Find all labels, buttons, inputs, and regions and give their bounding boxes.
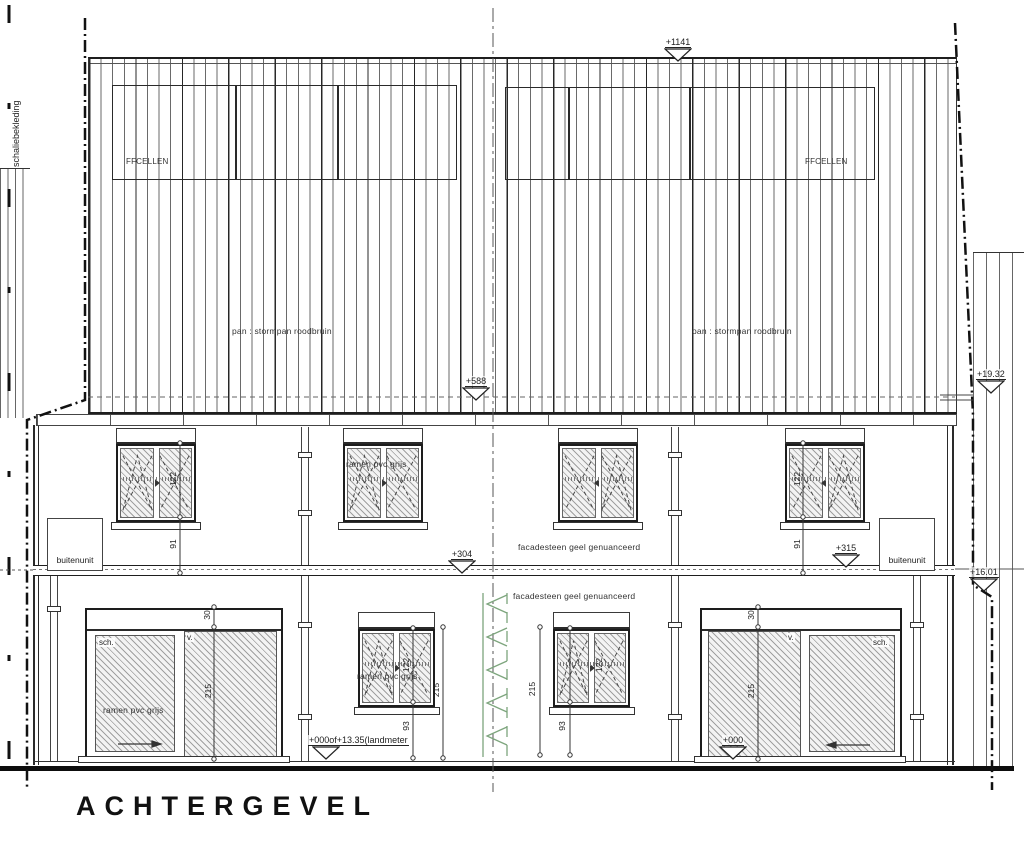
window-sill bbox=[553, 522, 643, 530]
window-lower-1 bbox=[358, 612, 435, 715]
dim-sill-height: 93 bbox=[557, 711, 567, 741]
outdoor-unit-right: buitenunit bbox=[879, 518, 935, 571]
dim-roller-height: 30 bbox=[202, 600, 212, 630]
pv-panel-field-right bbox=[505, 87, 875, 180]
window-upper-2 bbox=[343, 428, 423, 530]
opening-symbol bbox=[362, 633, 431, 703]
elevation-drawing-sheet: FFCELLEN FFCELLEN pan : stormpan roodbru… bbox=[0, 0, 1024, 853]
elevation-marker-floor-right: +315 bbox=[832, 543, 860, 568]
sliding-door-left: sch. v. bbox=[85, 608, 283, 762]
vent-grille bbox=[120, 477, 192, 481]
roller-shutter-box bbox=[553, 612, 630, 629]
vent-grille bbox=[557, 662, 626, 666]
opening-symbol bbox=[562, 448, 634, 518]
pv-divider bbox=[568, 88, 570, 179]
elevation-marker-neighbor-low: +16.01 bbox=[969, 567, 999, 592]
roof-tile-label-right: pan : stormpan roodbruin bbox=[692, 326, 792, 336]
facade-brick-label-lower: facadesteen geel genuanceerd bbox=[513, 591, 635, 601]
dim-sill-height: 91 bbox=[168, 529, 178, 559]
pipe-collar bbox=[910, 622, 924, 628]
downpipe bbox=[301, 574, 309, 762]
pv-label-left: FFCELLEN bbox=[126, 157, 169, 166]
pv-divider bbox=[235, 86, 237, 179]
downpipe bbox=[671, 427, 679, 566]
door-sliding-panel bbox=[95, 635, 175, 752]
party-wall-toothing bbox=[483, 593, 507, 757]
floor-slab-line bbox=[33, 565, 955, 576]
gutter bbox=[36, 414, 957, 426]
outdoor-unit-label: buitenunit bbox=[889, 555, 926, 565]
window-frame bbox=[343, 444, 423, 522]
window-sill bbox=[338, 522, 428, 530]
door-sliding-panel bbox=[809, 635, 895, 752]
wall-edge-left bbox=[33, 425, 35, 765]
door-material-label: ramen pvc grijs bbox=[103, 705, 164, 715]
fixed-abbrev: v. bbox=[186, 633, 194, 642]
roller-shutter-box bbox=[702, 610, 900, 631]
elevation-marker-ridge: +1141 bbox=[664, 37, 692, 62]
window-frame bbox=[116, 444, 196, 522]
window-sill bbox=[111, 522, 201, 530]
opening-symbol bbox=[557, 633, 626, 703]
window-upper-3 bbox=[558, 428, 638, 530]
window-upper-1 bbox=[116, 428, 196, 530]
downpipe bbox=[301, 427, 309, 566]
dim-roller-height: 30 bbox=[746, 600, 756, 630]
elevation-marker-neighbor-high: +19.32 bbox=[976, 369, 1006, 394]
roller-shutter-box bbox=[558, 428, 638, 444]
cladding-label: schaliebekleding bbox=[11, 100, 21, 167]
elevation-marker-floor-left: +304 bbox=[448, 549, 476, 574]
sliding-abbrev: sch. bbox=[98, 638, 115, 647]
dim-door-height: 215 bbox=[203, 676, 213, 706]
window-sill bbox=[354, 707, 440, 715]
pipe-collar bbox=[298, 622, 312, 628]
pipe-collar bbox=[298, 714, 312, 720]
pipe-collar bbox=[668, 622, 682, 628]
pipe-collar bbox=[668, 510, 682, 516]
pipe-collar bbox=[298, 510, 312, 516]
pipe-collar bbox=[298, 452, 312, 458]
dim-sill-height: 91 bbox=[792, 529, 802, 559]
elevation-marker-door-zero: +000 bbox=[719, 735, 747, 760]
roller-shutter-box bbox=[358, 612, 435, 629]
wall-edge-right-inner bbox=[947, 415, 948, 765]
dim-window-height: 122 bbox=[401, 650, 411, 680]
pipe-collar bbox=[668, 714, 682, 720]
outdoor-unit-label: buitenunit bbox=[57, 555, 94, 565]
vent-grille bbox=[562, 477, 634, 481]
roller-shutter-box bbox=[116, 428, 196, 444]
pv-divider bbox=[337, 86, 339, 179]
dim-opening-height: 215 bbox=[527, 674, 537, 704]
sliding-abbrev: sch. bbox=[872, 638, 889, 647]
roof-tile-label-left: pan : stormpan roodbruin bbox=[232, 326, 332, 336]
downpipe bbox=[50, 574, 58, 762]
pv-divider bbox=[689, 88, 691, 179]
elevation-marker-eaves: +588 bbox=[462, 376, 490, 401]
elevation-marker-ground: +000of+13.35(landmeter bbox=[308, 735, 409, 760]
pv-label-right: FFCELLEN bbox=[805, 157, 848, 166]
dim-opening-height: 215 bbox=[431, 675, 441, 705]
dim-window-height: 122 bbox=[168, 464, 178, 494]
neighbor-cladding-right bbox=[973, 252, 1024, 766]
window-frame bbox=[553, 629, 630, 707]
vent-grille bbox=[347, 477, 419, 481]
door-threshold bbox=[78, 756, 290, 763]
ground-line bbox=[0, 766, 1014, 771]
pipe-collar bbox=[668, 452, 682, 458]
downpipe bbox=[913, 574, 921, 762]
window-material-label-upper: ramen pvc grijs bbox=[346, 459, 407, 469]
wall-edge-right bbox=[952, 415, 954, 765]
pipe-collar bbox=[910, 714, 924, 720]
opening-symbol bbox=[120, 448, 192, 518]
roller-shutter-box bbox=[785, 428, 865, 444]
neighbor-cladding-left bbox=[0, 168, 30, 418]
fixed-abbrev: v. bbox=[787, 633, 795, 642]
pipe-collar bbox=[47, 606, 61, 612]
window-lower-2 bbox=[553, 612, 630, 715]
downpipe bbox=[671, 574, 679, 762]
wall-edge-left-inner bbox=[38, 425, 39, 765]
outdoor-unit-left: buitenunit bbox=[47, 518, 103, 571]
facade-brick-label-upper: facadesteen geel genuanceerd bbox=[518, 542, 640, 552]
roller-shutter-box bbox=[87, 610, 281, 631]
dim-door-height: 215 bbox=[746, 676, 756, 706]
dim-window-height: 122 bbox=[594, 650, 604, 680]
roller-shutter-box bbox=[343, 428, 423, 444]
drawing-title: ACHTERGEVEL bbox=[76, 791, 379, 822]
door-fixed-panel bbox=[184, 631, 277, 758]
window-frame bbox=[358, 629, 435, 707]
window-frame bbox=[558, 444, 638, 522]
dim-window-height: 122 bbox=[792, 464, 802, 494]
vent-grille bbox=[362, 662, 431, 666]
